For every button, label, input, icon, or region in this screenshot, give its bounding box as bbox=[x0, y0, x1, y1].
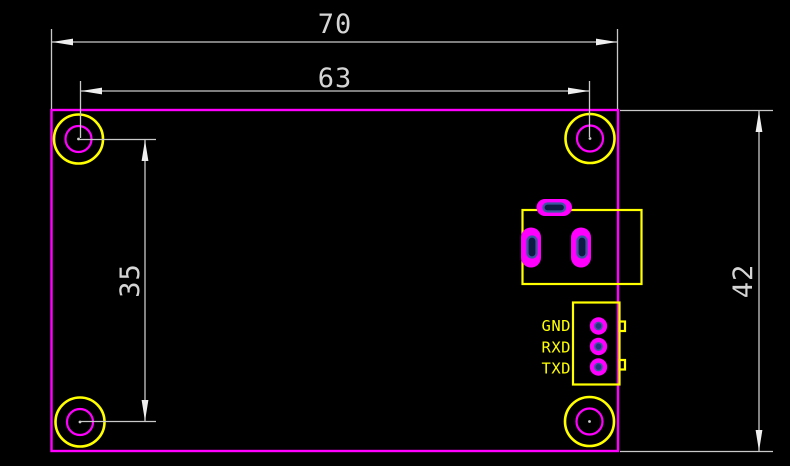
dimension-hole-span-width: 63 bbox=[81, 63, 590, 138]
hole-center-mark bbox=[589, 137, 592, 140]
pin-label-rxd: RXD bbox=[542, 339, 572, 357]
jack-slot-drill-top bbox=[544, 204, 566, 212]
arrowhead-bottom bbox=[142, 400, 149, 421]
serial-header-tab-bottom bbox=[620, 360, 626, 370]
hole-center-mark bbox=[588, 420, 591, 423]
dimension-board-width: 70 bbox=[52, 9, 618, 109]
pin-drill bbox=[595, 343, 602, 350]
pin-drill bbox=[595, 322, 602, 329]
dimension-hole-span-height: 35 bbox=[79, 140, 156, 422]
dimension-value-35: 35 bbox=[115, 263, 146, 298]
power-jack-footprint bbox=[521, 199, 642, 284]
dimension-value-70: 70 bbox=[318, 9, 353, 40]
dimension-value-42: 42 bbox=[728, 264, 759, 299]
arrowhead-left bbox=[81, 88, 102, 95]
arrowhead-top bbox=[142, 140, 149, 161]
arrowhead-left bbox=[52, 39, 73, 46]
dimension-board-height: 42 bbox=[620, 111, 773, 452]
arrowhead-top bbox=[756, 111, 763, 132]
arrowhead-bottom bbox=[756, 430, 763, 451]
jack-slot-drill-right bbox=[578, 237, 587, 258]
serial-pin-gnd bbox=[590, 317, 607, 334]
pin-drill bbox=[595, 363, 602, 370]
serial-pin-txd bbox=[590, 358, 607, 375]
pin-label-txd: TXD bbox=[542, 360, 572, 378]
arrowhead-right bbox=[568, 88, 589, 95]
arrowhead-right bbox=[596, 39, 617, 46]
pin-label-gnd: GND bbox=[542, 317, 572, 335]
serial-header-tab-top bbox=[620, 322, 626, 332]
dimension-value-63: 63 bbox=[318, 63, 353, 94]
pcb-dimension-drawing: GND RXD TXD 70 63 bbox=[0, 0, 790, 466]
cad-viewport: GND RXD TXD 70 63 bbox=[0, 0, 790, 466]
jack-slot-drill-left bbox=[528, 237, 537, 258]
serial-pin-rxd bbox=[590, 338, 607, 355]
mounting-hole-bottom-right bbox=[565, 397, 614, 446]
serial-header: GND RXD TXD bbox=[542, 303, 626, 385]
